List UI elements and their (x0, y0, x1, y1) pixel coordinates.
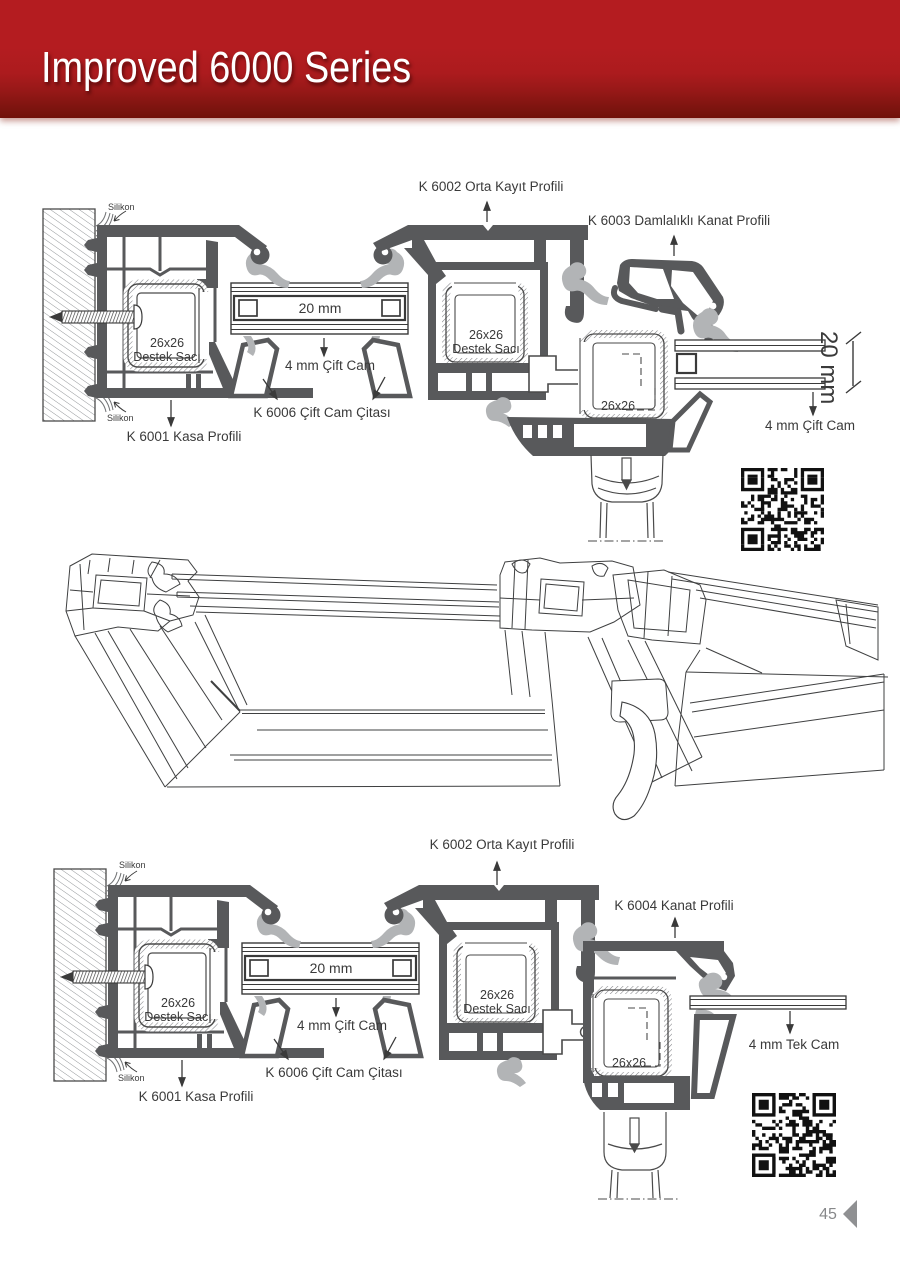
svg-text:45: 45 (819, 1206, 837, 1223)
svg-text:20 mm: 20 mm (299, 300, 342, 316)
svg-text:Destek Sacı: Destek Sacı (463, 1002, 530, 1016)
svg-text:26x26: 26x26 (601, 399, 635, 413)
svg-text:26x26: 26x26 (480, 988, 514, 1002)
svg-text:K 6004 Kanat Profili: K 6004 Kanat Profili (614, 898, 733, 913)
svg-text:K 6001 Kasa Profili: K 6001 Kasa Profili (127, 429, 242, 444)
svg-text:Silikon: Silikon (119, 860, 146, 870)
svg-text:K 6003 Damlalıklı Kanat Profil: K 6003 Damlalıklı Kanat Profili (588, 213, 770, 228)
svg-text:26x26: 26x26 (612, 1056, 646, 1070)
svg-text:4 mm Çift Cam: 4 mm Çift Cam (297, 1018, 387, 1033)
svg-text:Silikon: Silikon (108, 202, 135, 212)
svg-text:26x26: 26x26 (161, 996, 195, 1010)
svg-text:Silikon: Silikon (118, 1073, 145, 1083)
svg-text:26x26: 26x26 (150, 336, 184, 350)
svg-text:Destek Sacı: Destek Sacı (144, 1010, 211, 1024)
svg-text:Destek Sacı: Destek Sacı (452, 342, 519, 356)
svg-text:K 6002 Orta Kayıt Profili: K 6002 Orta Kayıt Profili (430, 837, 575, 852)
svg-text:K 6006 Çift Cam Çitası: K 6006 Çift Cam Çitası (253, 405, 390, 420)
svg-text:20 mm: 20 mm (815, 331, 842, 404)
svg-text:4 mm Tek Cam: 4 mm Tek Cam (749, 1037, 840, 1052)
svg-text:26x26: 26x26 (469, 328, 503, 342)
svg-text:4 mm Çift Cam: 4 mm Çift Cam (285, 358, 375, 373)
svg-text:Destek Sacı: Destek Sacı (133, 350, 200, 364)
svg-text:4 mm Çift Cam: 4 mm Çift Cam (765, 418, 855, 433)
svg-text:K 6001 Kasa Profili: K 6001 Kasa Profili (139, 1089, 254, 1104)
svg-text:Silikon: Silikon (107, 413, 134, 423)
svg-text:K 6002 Orta Kayıt Profili: K 6002 Orta Kayıt Profili (419, 179, 564, 194)
svg-text:K 6006 Çift Cam Çitası: K 6006 Çift Cam Çitası (265, 1065, 402, 1080)
